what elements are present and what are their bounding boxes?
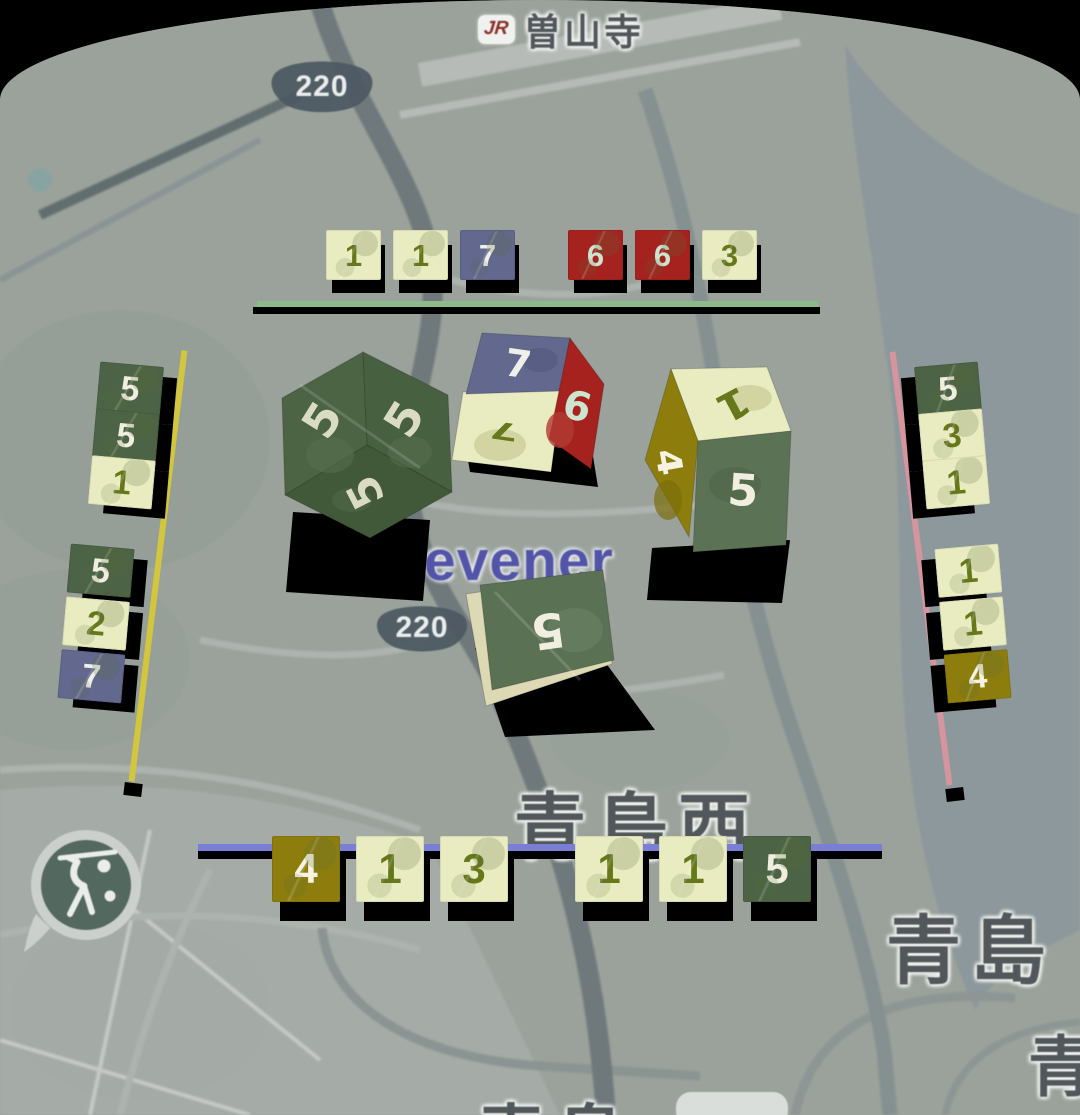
die-value: 1 [378,848,401,890]
dice-row-top-left: 117 [326,230,515,280]
route-number: 220 [266,50,378,134]
district-label-partial-right: 青 [1028,1014,1080,1110]
die[interactable]: 5 [92,408,160,462]
map-viewport: JR 曽山寺 220 220 evener 青島西 青島 青島 青 [0,0,1080,1115]
game-stage: JR 曽山寺 220 220 evener 青島西 青島 青島 青 [0,0,1080,1115]
route-shield-mid: 220 [372,596,472,670]
die-value: 5 [119,371,141,407]
dice-column-left-upper: 551 [88,361,164,507]
die-value: 3 [941,418,963,454]
route-number: 220 [372,596,472,670]
die-value: 1 [957,553,979,589]
district-label: 青島 [886,890,1056,999]
die[interactable]: 1 [88,455,156,509]
die[interactable]: 6 [635,230,690,280]
dice-column-right-lower: 114 [934,544,1011,704]
die[interactable]: 4 [272,836,340,902]
street-name-label: evener [424,528,614,594]
die-value: 7 [479,240,496,271]
district-label-partial-bottom: 青島 [476,1082,636,1115]
die-value: 1 [962,606,984,642]
die[interactable]: 1 [356,836,424,902]
station-name: 曽山寺 [524,2,644,56]
die[interactable]: 5 [96,361,164,415]
die-value: 3 [462,848,485,890]
die[interactable]: 1 [575,836,643,902]
die-value: 1 [345,240,362,271]
die-value: 6 [654,240,671,271]
dice-row-bottom-right: 115 [575,836,811,902]
die[interactable]: 1 [922,455,990,509]
top-track-shadow [253,307,820,314]
empty-label-pill [676,1092,788,1115]
die[interactable]: 1 [393,230,448,280]
die[interactable]: 5 [743,836,811,902]
die-value: 2 [85,606,107,642]
die[interactable]: 3 [440,836,508,902]
jr-logo-icon: JR [478,15,515,44]
die-value: 4 [294,848,317,890]
die[interactable]: 1 [659,836,727,902]
jr-logo-text: JR [483,18,510,40]
die[interactable]: 1 [939,596,1007,650]
die[interactable]: 5 [67,544,135,598]
dice-column-right-upper: 531 [914,361,990,507]
die[interactable]: 4 [944,649,1012,703]
die-value: 1 [111,465,133,501]
die[interactable]: 1 [934,544,1002,598]
die-value: 7 [80,659,102,695]
die[interactable]: 2 [62,596,130,650]
die-value: 1 [597,848,620,890]
station-label: JR 曽山寺 [478,2,644,56]
die[interactable]: 3 [918,408,986,462]
golf-poi-icon [20,828,150,953]
right-track-end-shadow [945,787,964,802]
top-track [257,301,818,307]
die-value: 5 [115,418,137,454]
die-value: 5 [765,848,788,890]
dice-row-bottom-left: 413 [272,836,508,902]
die-value: 6 [587,240,604,271]
die-value: 5 [90,553,112,589]
die-value: 1 [412,240,429,271]
dice-row-top-right: 663 [568,230,757,280]
die[interactable]: 1 [326,230,381,280]
route-shield-top: 220 [266,50,378,134]
die[interactable]: 3 [702,230,757,280]
die[interactable]: 5 [914,361,982,415]
die[interactable]: 6 [568,230,623,280]
dice-column-left-lower: 527 [57,544,134,704]
die[interactable]: 7 [57,649,125,703]
die-value: 3 [721,240,738,271]
left-track-end-shadow [123,782,142,797]
die-value: 1 [945,465,967,501]
die-value: 1 [681,848,704,890]
die[interactable]: 7 [460,230,515,280]
die-value: 5 [937,371,959,407]
die-value: 4 [967,659,989,695]
